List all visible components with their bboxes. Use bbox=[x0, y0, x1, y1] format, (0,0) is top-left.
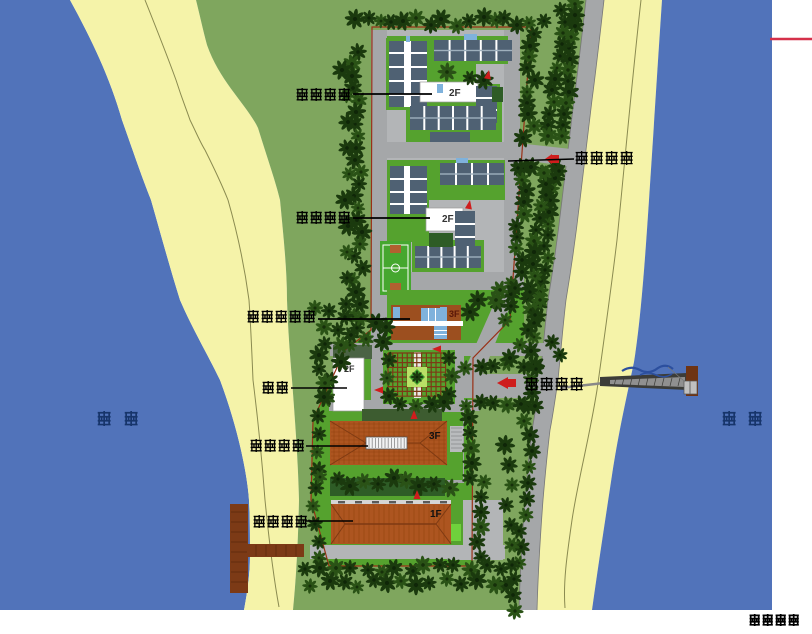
svg-text:1F: 1F bbox=[430, 509, 442, 520]
svg-text:3F: 3F bbox=[429, 431, 441, 442]
svg-text:2F: 2F bbox=[442, 214, 454, 225]
svg-text:3F: 3F bbox=[449, 309, 460, 319]
svg-text:2F: 2F bbox=[449, 88, 461, 99]
